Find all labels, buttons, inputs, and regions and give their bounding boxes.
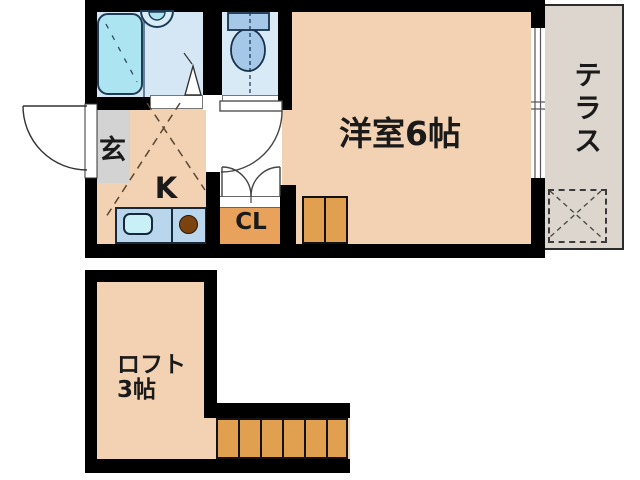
entrance-label: 玄 — [95, 128, 130, 167]
toilet-icon — [231, 29, 265, 71]
overlay — [0, 0, 640, 480]
folding-door-tick — [184, 53, 192, 64]
toilet-tank — [228, 13, 269, 30]
floor-plan: 玄 K CL 洋室6帖 テラス ロフト 3帖 — [0, 0, 640, 480]
closet-label: CL — [220, 209, 282, 235]
kitchen-label: K — [145, 171, 187, 205]
entrance-door-arc — [23, 106, 87, 170]
terrace-label: テラス — [566, 60, 606, 159]
room-door-arc — [221, 111, 282, 172]
bathtub-icon — [98, 14, 142, 94]
main-room-label: 洋室6帖 — [300, 107, 500, 155]
room-door-leaf — [220, 101, 282, 111]
closet-door-arc-right — [251, 167, 280, 196]
folding-door-icon — [185, 66, 201, 95]
loft-size-label: 3帖 — [117, 370, 156, 404]
